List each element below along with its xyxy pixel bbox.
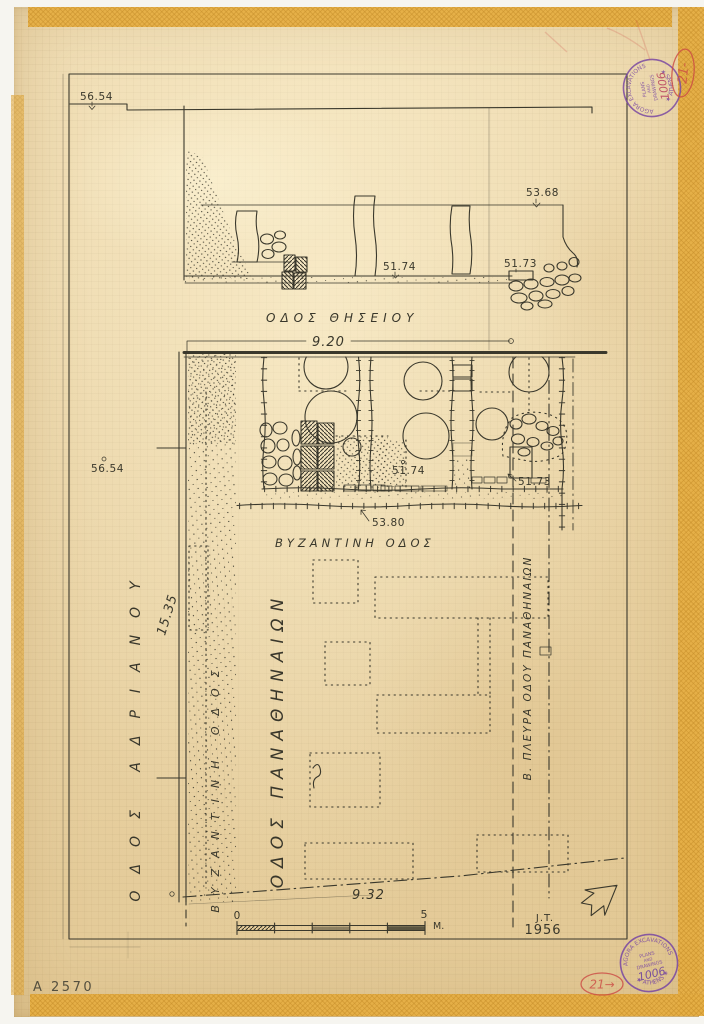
elevation-label-stones: 51.73 [504,258,537,272]
left-measure: 15.35 [154,448,186,778]
street-label-panathenaion: ΟΔΟΣ ΠΑΝΑΘΗΝΑΙΩΝ [268,592,288,889]
red-scribble-marks [545,20,650,60]
dimension-value-bottom: 9.32 [352,888,385,903]
section-wall-piers [236,196,472,276]
elevation-label-plan-left: 56.54 [91,457,124,475]
room-1-contents [260,345,388,491]
rubble-stones-room3 [510,414,563,456]
dimension-value-left: 15.35 [154,593,181,638]
svg-text:56.54: 56.54 [91,463,124,475]
find-spot-mark [313,765,321,789]
svg-text:53.68: 53.68 [526,187,559,199]
svg-text:53.80: 53.80 [372,517,405,529]
scale-zero-label: 0 [234,910,241,922]
svg-text:AND: AND [645,84,651,94]
signature: J.T. 1956 [524,913,561,938]
byzantine-road-south-wall [237,504,582,507]
street-label-adrianou: ΟΔΟΣ ΑΔΡΙΑΝΟΥ [128,564,144,901]
room-2-contents: 51.74 [377,362,452,491]
rubble-stones-left [261,231,287,259]
drawing-ink-layer: 56.54 [0,0,704,1024]
street-ground-line [185,276,512,283]
svg-text:51.74: 51.74 [383,261,416,273]
plan-west-edge [179,352,186,902]
drawing-year: 1956 [524,923,561,938]
scale-five-label: 5 [421,908,428,921]
hatched-blocks-section [282,255,307,289]
room-3-contents: 51.73 [472,352,567,488]
north-arrow-icon [576,873,626,922]
scale-unit-label: M. [433,921,444,932]
dimension-value-top: 9.20 [312,335,345,350]
scanned-drawing-page: 56.54 [0,0,704,1024]
scale-bar: 0 5 M. [234,908,445,935]
street-label-theseiou: ΟΔΟΣ ΘΗΣΕΙΟΥ [266,311,418,325]
agora-excavations-stamp-top-icon: AGORA EXCAVATIONS ★ ATHENS ★ PLANS AND D… [619,55,685,121]
catalog-number-label: A 2570 [33,980,94,995]
svg-text:51.73: 51.73 [504,258,537,270]
elevation-label-terrace: 53.68 [526,187,559,207]
section-fill-stipple [186,150,253,279]
elevation-label-room-right: 51.73 [508,474,551,488]
section-view: 56.54 [70,91,592,350]
elevation-label-road: 53.80 [361,510,405,529]
red-annotation-bottom: 21→ [581,973,623,995]
dimension-top: 9.20 [187,335,513,351]
cobble-wall-stones [260,422,301,486]
svg-text:51.74: 51.74 [392,465,425,477]
elevation-label-surface: 56.54 [80,91,113,103]
svg-text:21-: 21- [675,61,692,84]
svg-text:21→: 21→ [589,978,614,992]
corridor-blocks [453,365,472,488]
hatched-wall-blocks [301,421,334,491]
drawing-border-frame [63,74,627,958]
side-label-panathenaion: Β. ΠΛΕΥΡΑ ΟΔΟΥ ΠΑΝΑΘΗΝΑΙΩΝ [522,556,534,781]
street-label-byzantine-vertical: ΒΥΖΑΝΤΙΝΗ ΟΔΟΣ [209,659,222,912]
surface-level-line [70,102,592,113]
red-annotation-top: 21- [670,48,697,98]
street-label-byzantine-horizontal: ΒΥΖΑΝΤΙΝΗ ΟΔΟΣ [275,536,435,550]
plan-view: 15.35 56.54 ΟΔΟΣ ΑΔΡΙΑΝΟΥ ΒΥΖΑΝΤΙΝΗ ΟΔΟΣ [91,345,625,927]
